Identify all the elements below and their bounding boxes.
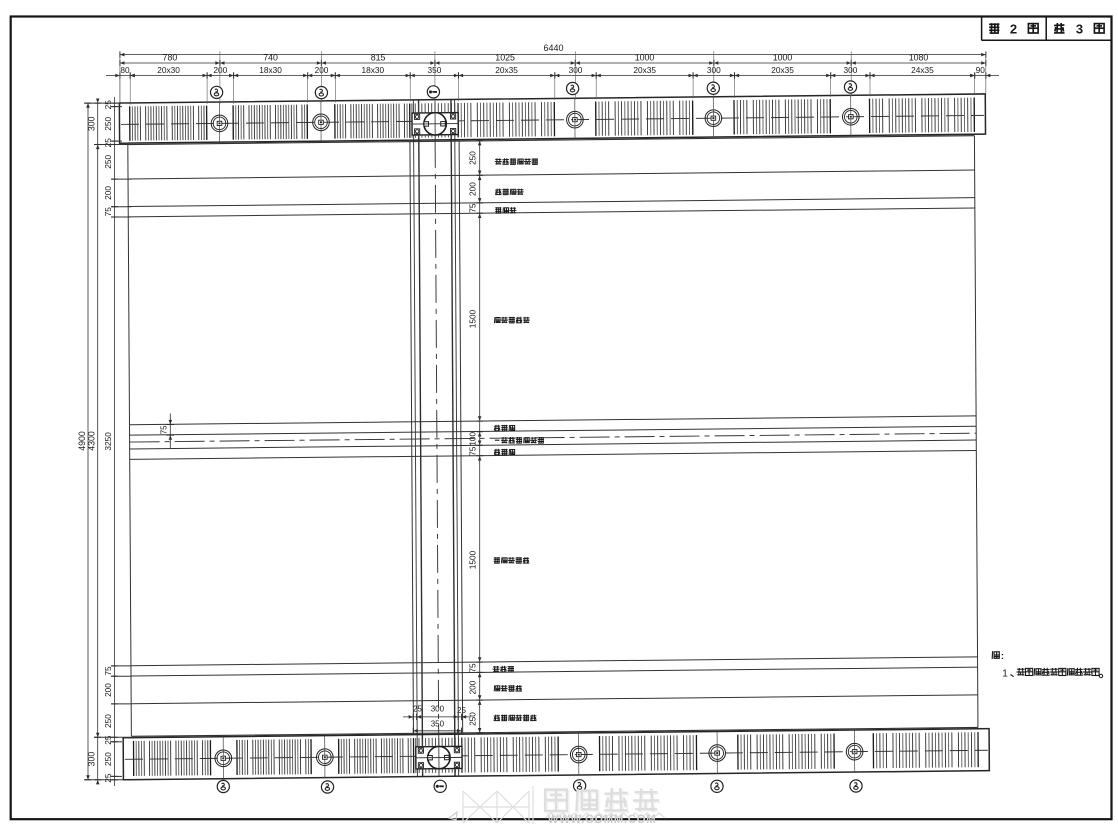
svg-text:25: 25 [413, 705, 422, 714]
svg-text:300: 300 [843, 65, 857, 75]
svg-text:100: 100 [467, 431, 477, 445]
svg-text:90: 90 [976, 65, 986, 75]
svg-text:1000: 1000 [635, 53, 655, 63]
svg-text:18x30: 18x30 [361, 65, 384, 75]
svg-text:200: 200 [103, 186, 113, 200]
svg-text:25: 25 [103, 138, 113, 148]
svg-text:3250: 3250 [103, 432, 113, 451]
svg-text:300: 300 [86, 752, 96, 767]
svg-text:250: 250 [467, 151, 477, 165]
svg-text:250: 250 [103, 116, 113, 130]
svg-text:815: 815 [371, 53, 386, 63]
svg-text:20x30: 20x30 [157, 65, 180, 75]
svg-text:4300: 4300 [86, 431, 96, 451]
svg-text::: : [1001, 651, 1004, 662]
svg-text:250: 250 [103, 752, 113, 766]
svg-text:250: 250 [467, 712, 477, 726]
svg-text:20x35: 20x35 [495, 65, 518, 75]
svg-text:18x30: 18x30 [259, 65, 282, 75]
svg-text:300: 300 [431, 705, 445, 714]
svg-text:1500: 1500 [467, 550, 477, 569]
svg-text:250: 250 [103, 154, 113, 168]
svg-text:4900: 4900 [77, 431, 87, 451]
svg-text:25: 25 [103, 773, 113, 783]
svg-text:6440: 6440 [543, 43, 563, 53]
svg-text:250: 250 [103, 714, 113, 728]
svg-text:20x35: 20x35 [771, 65, 794, 75]
svg-text:75: 75 [467, 446, 477, 456]
svg-text:3: 3 [1076, 22, 1083, 37]
svg-text:75: 75 [467, 663, 477, 673]
svg-text:20x35: 20x35 [633, 65, 656, 75]
svg-text:75: 75 [159, 425, 168, 434]
svg-text:75: 75 [103, 207, 113, 217]
svg-text:1025: 1025 [495, 53, 515, 63]
svg-text:300: 300 [86, 116, 96, 131]
svg-text:350: 350 [431, 720, 445, 729]
svg-text:200: 200 [213, 65, 227, 75]
svg-text:1080: 1080 [909, 53, 929, 63]
svg-text:75: 75 [467, 203, 477, 213]
svg-text:1500: 1500 [467, 309, 477, 328]
svg-text:25: 25 [103, 100, 113, 110]
svg-text:200: 200 [467, 680, 477, 694]
svg-text:780: 780 [163, 53, 178, 63]
svg-text:25: 25 [457, 706, 466, 715]
svg-text:200: 200 [467, 182, 477, 196]
svg-text:350: 350 [427, 65, 441, 75]
svg-text:75: 75 [103, 666, 113, 676]
svg-text:300: 300 [569, 65, 583, 75]
svg-text:25: 25 [103, 735, 113, 745]
svg-text:80: 80 [120, 65, 130, 75]
svg-text:200: 200 [103, 683, 113, 697]
svg-text:2: 2 [1010, 22, 1017, 37]
svg-text:1: 1 [1002, 669, 1008, 680]
svg-text:740: 740 [263, 53, 278, 63]
svg-text:24x35: 24x35 [911, 65, 934, 75]
svg-text:1000: 1000 [773, 53, 793, 63]
